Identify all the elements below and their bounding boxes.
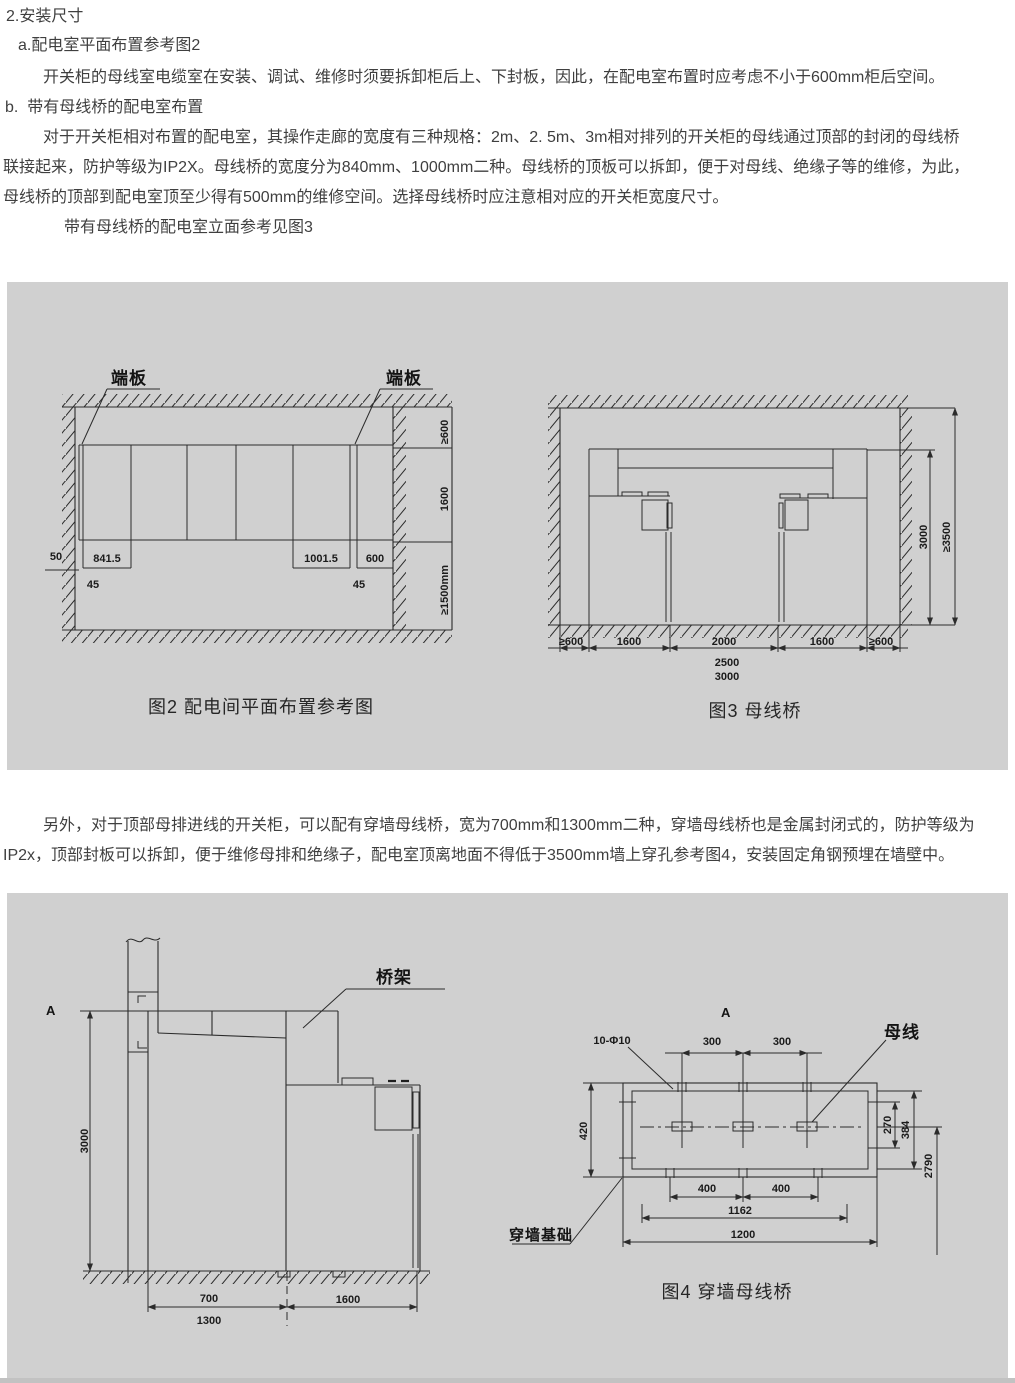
fig2-dim-45-right: 45 — [353, 579, 365, 591]
fig4-caption: 图4 穿墙母线桥 — [661, 1282, 792, 1302]
fig4-section-mark: A — [721, 1005, 731, 1020]
fig2-dim-841-5: 841.5 — [93, 553, 121, 565]
fig-side-fig4-drawing: A 桥架 3000 700 1600 1300 — [7, 893, 1008, 1383]
fig2-dim-45-left: 45 — [87, 579, 99, 591]
fig4-dim-300-left: 300 — [703, 1036, 721, 1048]
fig4-dim-300-right: 300 — [773, 1036, 791, 1048]
fig3-dim-corridor: 2000 — [712, 636, 736, 648]
fig2-dim-depth: 1600 — [439, 487, 451, 511]
item-a: a.配电室平面布置参考图2 — [18, 37, 200, 54]
fig3-dim-room-height: ≥3500 — [941, 522, 953, 553]
figwall-section-mark: A — [46, 1003, 56, 1018]
fig3-left-cabinet — [589, 492, 672, 622]
fig4-holes-label: 10-Φ10 — [593, 1035, 630, 1047]
fig3-dim-left-cabinet: 1600 — [617, 636, 641, 648]
fig4-dim-384: 384 — [900, 1120, 912, 1139]
fig2-cabinet-row — [79, 445, 393, 540]
fig2-endplate-left-label: 端板 — [111, 368, 147, 388]
fig3-extension-lines — [548, 450, 935, 652]
fig3-dim-left-clearance: ≥600 — [559, 636, 583, 648]
paragraph-a: 开关柜的母线室电缆室在安装、调试、维修时须要拆卸柜后上、下封板，因此，在配电室布… — [43, 69, 944, 86]
figwall-bridge-and-cabinet — [286, 1011, 420, 1271]
fig4-dim-1200: 1200 — [731, 1229, 755, 1241]
figwall-dim-3000: 3000 — [79, 1129, 91, 1153]
fig3-right-cabinet — [779, 494, 867, 622]
section-heading: 2.安装尺寸 — [6, 8, 83, 25]
figwall-dim-1600: 1600 — [336, 1294, 360, 1306]
fig4-dim-420: 420 — [578, 1122, 590, 1140]
paragraph-b-line1: 对于开关柜相对布置的配电室，其操作走廊的宽度有三种规格：2m、2. 5m、3m相… — [43, 129, 959, 146]
fig2-fig3-drawing: 端板 端板 841.5 1001.5 600 50 45 45 ≥600 160… — [7, 282, 1008, 770]
fig2-dim-back-clearance: ≥600 — [439, 420, 451, 444]
figwall-floor — [83, 1271, 430, 1284]
fig2-caption: 图2 配电间平面布置参考图 — [148, 697, 374, 717]
item-b: b. 带有母线桥的配电室布置 — [5, 99, 203, 116]
fig4-busbar-label: 母线 — [884, 1022, 920, 1042]
paragraph-b-line2: 联接起来，防护等级为IP2X。母线桥的宽度分为840mm、1000mm二种。母线… — [3, 159, 969, 176]
figure-panel-bottom: A 桥架 3000 700 1600 1300 — [7, 893, 1008, 1383]
middle-paragraph-line2: IP2x，顶部封板可以拆卸，便于维修母排和绝缘子，配电室顶离地面不得低于3500… — [3, 847, 954, 864]
fig3-dim-right-clearance: ≥600 — [869, 636, 893, 648]
paragraph-b-line3: 母线桥的顶部到配电室顶至少得有500mm的维修空间。选择母线桥时应注意相对应的开… — [3, 189, 728, 206]
fig3-dim-right-cabinet: 1600 — [810, 636, 834, 648]
fig3-wall-hatching — [548, 395, 912, 638]
fig3-dim-corridor-alt2: 3000 — [715, 671, 739, 683]
scan-edge-strip — [0, 1378, 1015, 1383]
fig4-duct-body — [583, 1053, 877, 1178]
fig3-caption: 图3 母线桥 — [708, 701, 801, 721]
fig3-dim-bridge-height: 3000 — [918, 525, 930, 549]
paragraph-b-line4: 带有母线桥的配电室立面参考见图3 — [64, 219, 313, 236]
fig3-dim-corridor-alt1: 2500 — [715, 657, 739, 669]
fig3-height-dimension-lines — [930, 408, 955, 625]
fig4-dim-2790: 2790 — [923, 1154, 935, 1178]
fig4-leader-lines — [512, 1040, 886, 1244]
figwall-dim-700: 700 — [200, 1293, 218, 1305]
fig4-dim-400-right: 400 — [772, 1183, 790, 1195]
middle-paragraph-line1: 另外，对于顶部母排进线的开关柜，可以配有穿墙母线桥，宽为700mm和1300mm… — [43, 817, 975, 834]
fig2-room-outline — [62, 407, 452, 630]
figwall-dim-1300: 1300 — [197, 1315, 221, 1327]
fig3-bus-bridge — [589, 449, 867, 625]
fig3-room-outline — [548, 408, 955, 625]
fig4-dim-400-left: 400 — [698, 1183, 716, 1195]
fig2-dim-50: 50 — [50, 551, 62, 563]
figwall-bridge-label: 桥架 — [376, 967, 412, 987]
fig4-dim-1162: 1162 — [728, 1205, 752, 1217]
document-page: 2.安装尺寸 a.配电室平面布置参考图2 开关柜的母线室电缆室在安装、调试、维修… — [0, 0, 1015, 1383]
fig2-endplate-right-label: 端板 — [386, 368, 422, 388]
fig2-dim-600: 600 — [366, 553, 384, 565]
figure-panel-top: 端板 端板 841.5 1001.5 600 50 45 45 ≥600 160… — [7, 282, 1008, 770]
figwall-bridge-leader — [303, 989, 445, 1028]
fig4-dim-270: 270 — [882, 1116, 894, 1134]
fig2-dim-1001-5: 1001.5 — [304, 553, 338, 565]
figwall-wall-and-duct — [80, 938, 338, 1271]
fig2-dim-corridor: ≥1500mm — [439, 565, 451, 615]
fig4-foundation-label: 穿墙基础 — [509, 1226, 573, 1244]
